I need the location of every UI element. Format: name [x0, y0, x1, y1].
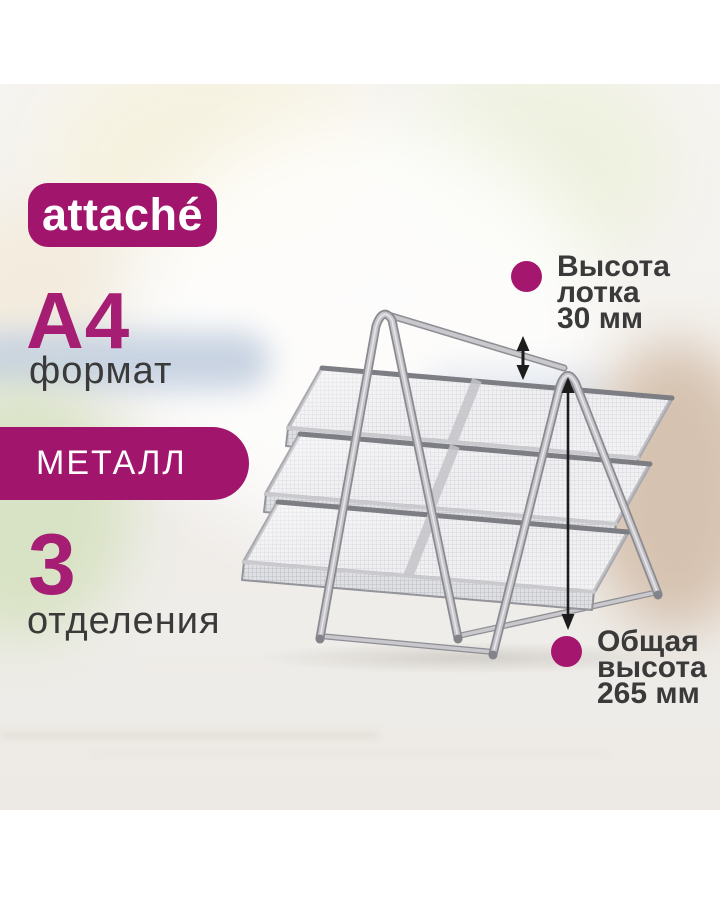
annotation-line: 265 мм [597, 681, 707, 707]
magenta-dot-icon [551, 636, 582, 667]
format-label: формат [29, 351, 172, 393]
attache-logo: attaché [28, 183, 217, 247]
compartments-label: отделения [27, 601, 221, 643]
table-grain-line [0, 732, 380, 738]
product-card: attaché A4 формат МЕТАЛЛ 3 отделения Выс… [0, 0, 720, 900]
table-grain-line [90, 752, 610, 756]
compartments-value: 3 [28, 522, 76, 608]
format-value: A4 [26, 281, 130, 361]
annotation-line: 30 мм [557, 306, 670, 332]
magenta-dot-icon [511, 261, 542, 292]
material-banner: МЕТАЛЛ [0, 427, 249, 500]
annotation-total-height: Общая высота 265 мм [551, 629, 707, 707]
top-white-band [0, 0, 720, 84]
material-banner-label: МЕТАЛЛ [36, 444, 187, 483]
annotation-tray-height: Высота лотка 30 мм [511, 254, 670, 332]
bottom-white-band [0, 810, 720, 900]
attache-logo-text: attaché [42, 189, 203, 241]
